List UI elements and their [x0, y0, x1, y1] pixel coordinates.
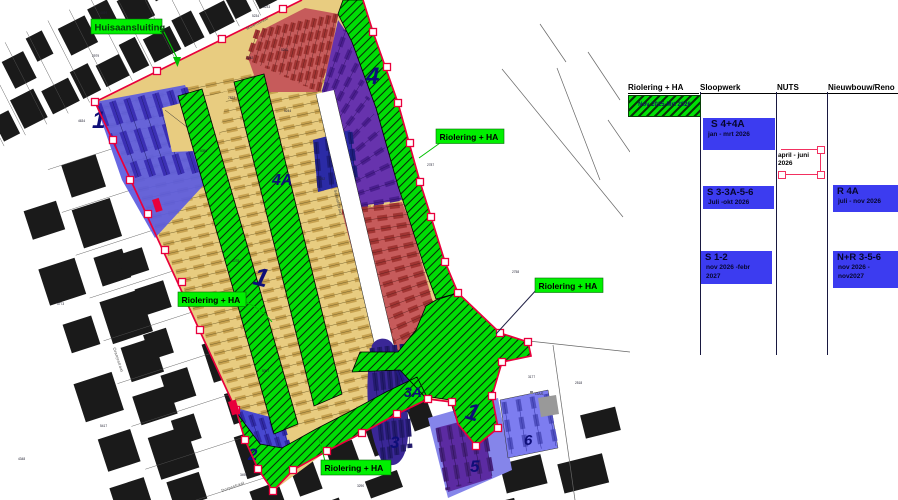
box-title: R 4A [833, 185, 898, 197]
parcel-number: 4348 [18, 457, 25, 461]
box-dates: jan - mrt 2026 [703, 130, 775, 140]
boundary-marker [442, 259, 449, 266]
parcel-boundary-line [557, 68, 600, 180]
nieuwbouw-box-nr3: N+R 3-5-6 nov 2026 -nov2027 [833, 251, 898, 288]
zone-3a-label: 3A [404, 384, 422, 400]
parcel-number: 5056 [200, 149, 207, 153]
leader-line [419, 143, 440, 158]
boundary-marker [270, 488, 277, 495]
building-footprint [72, 198, 122, 248]
boundary-marker [455, 290, 462, 297]
sloopwerk-box-s3: S 3-3A-5-6 Juli -okt 2026 [703, 186, 774, 209]
boundary-marker [242, 437, 249, 444]
boundary-marker [525, 339, 532, 346]
building-footprint [41, 78, 80, 115]
box-title: S 1-2 [701, 251, 772, 263]
boundary-marker [127, 177, 134, 184]
gas-marker [530, 391, 533, 394]
annotation-riolering-right-top: Riolering + HA [436, 129, 504, 144]
cadastral-map: 1 1 1 4 4A 2 3 3A 5 6 GAS MolenstraatOra… [0, 0, 630, 500]
riolering-label: Riolering + HA [325, 463, 384, 473]
parcel-boundary-line [588, 52, 620, 100]
parcel-number: 5233 [263, 5, 270, 9]
boundary-marker [473, 443, 480, 450]
boundary-marker [145, 211, 152, 218]
parcel-number: 5234 [252, 14, 259, 18]
box-dates: juli - nov 2026 [833, 197, 898, 207]
building-footprint [10, 89, 48, 129]
nuts-bracket-top [781, 149, 822, 150]
box-dates: Juli -okt 2026 [703, 198, 774, 208]
riolering-schedule-label: Nov 2025-Mrt 2026 [629, 96, 700, 115]
boundary-marker [324, 448, 331, 455]
building-footprint [0, 110, 20, 141]
nuts-bracket-marker [778, 171, 786, 179]
zone-4a-label: 4A [271, 172, 292, 189]
riolering-schedule-bar: Nov 2025-Mrt 2026 [628, 95, 701, 117]
boundary-marker [384, 64, 391, 71]
zone-3-label: 3 [390, 433, 400, 452]
boundary-marker [495, 425, 502, 432]
parcel-number: 5242 [246, 56, 253, 60]
boundary-marker [162, 247, 169, 254]
boundary-marker [370, 29, 377, 36]
boundary-marker [395, 100, 402, 107]
boundary-marker [417, 179, 424, 186]
huisaansluiting-label: Huisaansluiting [95, 23, 166, 34]
box-title: N+R 3-5-6 [833, 251, 898, 263]
zone-5-label: 5 [470, 457, 480, 476]
riolering-label: Riolering + HA [182, 295, 241, 305]
nuts-bracket-marker [817, 171, 825, 179]
sloopwerk-box-s1: S 1-2 nov 2026 -febr 2027 [701, 251, 772, 284]
column-divider [776, 92, 777, 355]
parcel-number: 5241 [281, 48, 288, 52]
boundary-marker [92, 99, 99, 106]
annotation-riolering-right-mid: Riolering + HA [535, 278, 603, 293]
parcel-number: 5097 [262, 369, 269, 373]
column-divider [827, 92, 828, 355]
boundary-marker [110, 137, 117, 144]
parcel-number: 5417 [100, 424, 107, 428]
street-label: Dorpsstraat [221, 480, 246, 493]
parcel-number: 3490 [240, 473, 247, 477]
building-footprint [98, 429, 141, 472]
parcel-number: 2979 [92, 54, 99, 58]
parcel-number: 5078 [232, 259, 239, 263]
boundary-marker [359, 430, 366, 437]
building-footprint [144, 0, 174, 1]
building-footprint [96, 54, 130, 87]
boundary-marker [499, 359, 506, 366]
box-title: S 4+4A [703, 118, 775, 130]
boundary-marker [428, 214, 435, 221]
parcel-number: 7822 [228, 96, 235, 100]
parcel-number: 4459 [100, 11, 107, 15]
parcel-boundary-line [608, 120, 630, 152]
riolering-label: Riolering + HA [539, 281, 598, 291]
nuts-bracket-bottom [781, 174, 822, 175]
boundary-marker [179, 279, 186, 286]
annotation-huisaansluiting: Huisaansluiting [91, 19, 165, 34]
parcel-number: 4634 [78, 119, 85, 123]
boundary-marker [489, 393, 496, 400]
boundary-marker [197, 327, 204, 334]
building-footprint [38, 258, 86, 306]
annotation-riolering-left: Riolering + HA [178, 292, 246, 307]
boundary-marker [425, 396, 432, 403]
zone-6-gray-building [538, 395, 559, 417]
boundary-marker [255, 466, 262, 473]
parcel-number: 5252 [318, 177, 325, 181]
parcel-number: 5773 [57, 302, 64, 306]
boundary-marker [290, 467, 297, 474]
zone-6-label: 6 [524, 432, 533, 449]
parcel-number: 2758 [512, 270, 519, 274]
parcel-number: 2787 [427, 163, 434, 167]
boundary-marker [219, 36, 226, 43]
building-footprint [580, 407, 621, 439]
box-title: S 3-3A-5-6 [703, 186, 774, 198]
riolering-label: Riolering + HA [440, 132, 499, 142]
parcel-boundary-line [502, 69, 623, 217]
box-dates: nov 2026 -nov2027 [833, 263, 883, 281]
leader-line [496, 288, 538, 334]
column-header-nieuwbouw: Nieuwbouw/Reno [828, 83, 898, 94]
zone-4-label: 4 [365, 63, 379, 90]
boundary-marker [394, 411, 401, 418]
parcel-boundary-line [540, 24, 566, 62]
annotation-riolering-bottom: Riolering + HA [321, 460, 391, 475]
nuts-dates: april - juni 2026 [778, 152, 822, 168]
boundary-marker [407, 140, 414, 147]
boundary-marker [449, 399, 456, 406]
nieuwbouw-box-r4a: R 4A juli - nov 2026 [833, 185, 898, 212]
boundary-marker [280, 6, 287, 13]
column-header-sloopwerk: Sloopwerk [700, 83, 776, 94]
planning-map-page: 1 1 1 4 4A 2 3 3A 5 6 GAS MolenstraatOra… [0, 0, 898, 500]
parcel-number: 2518 [575, 381, 582, 385]
sloopwerk-box-s4: S 4+4A jan - mrt 2026 [703, 118, 775, 150]
building-footprint [24, 201, 66, 240]
parcel-number: 5244 [284, 109, 291, 113]
box-dates: nov 2026 -febr 2027 [701, 263, 761, 281]
column-header-riolering: Riolering + HA [628, 83, 699, 94]
building-footprint [74, 372, 124, 422]
column-divider [700, 92, 701, 355]
gas-label: GAS [535, 391, 544, 396]
building-footprint [63, 315, 101, 353]
building-footprint [61, 154, 106, 197]
column-header-nuts: NUTS [777, 83, 827, 94]
boundary-marker [154, 68, 161, 75]
parcel-number: 3290 [357, 484, 364, 488]
building-footprint [109, 477, 153, 500]
building-footprint [557, 453, 609, 493]
parcel-number: 3177 [528, 375, 535, 379]
